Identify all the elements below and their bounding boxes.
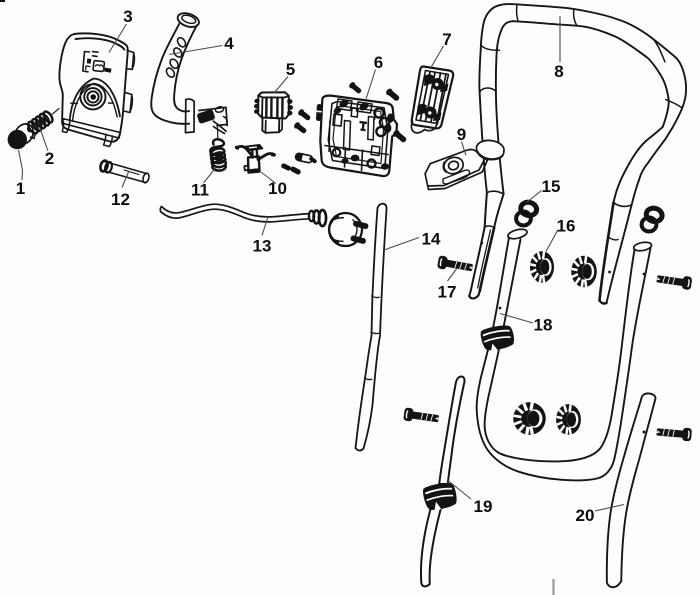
svg-text:6: 6 xyxy=(374,53,383,72)
svg-text:10: 10 xyxy=(268,179,287,198)
svg-text:14: 14 xyxy=(422,230,441,249)
svg-text:12: 12 xyxy=(111,190,130,209)
svg-text:16: 16 xyxy=(557,217,576,236)
svg-text:5: 5 xyxy=(286,60,295,79)
svg-text:15: 15 xyxy=(542,177,561,196)
svg-text:18: 18 xyxy=(534,316,553,335)
svg-text:13: 13 xyxy=(253,237,272,256)
svg-text:4: 4 xyxy=(224,34,234,53)
svg-text:8: 8 xyxy=(554,62,563,81)
svg-text:11: 11 xyxy=(191,181,209,200)
svg-text:20: 20 xyxy=(576,506,595,525)
svg-text:17: 17 xyxy=(438,283,457,302)
svg-text:9: 9 xyxy=(457,125,466,144)
svg-text:1: 1 xyxy=(16,179,25,198)
svg-text:2: 2 xyxy=(45,149,54,168)
svg-text:19: 19 xyxy=(474,497,493,516)
svg-text:3: 3 xyxy=(123,7,132,26)
svg-text:7: 7 xyxy=(442,30,451,49)
